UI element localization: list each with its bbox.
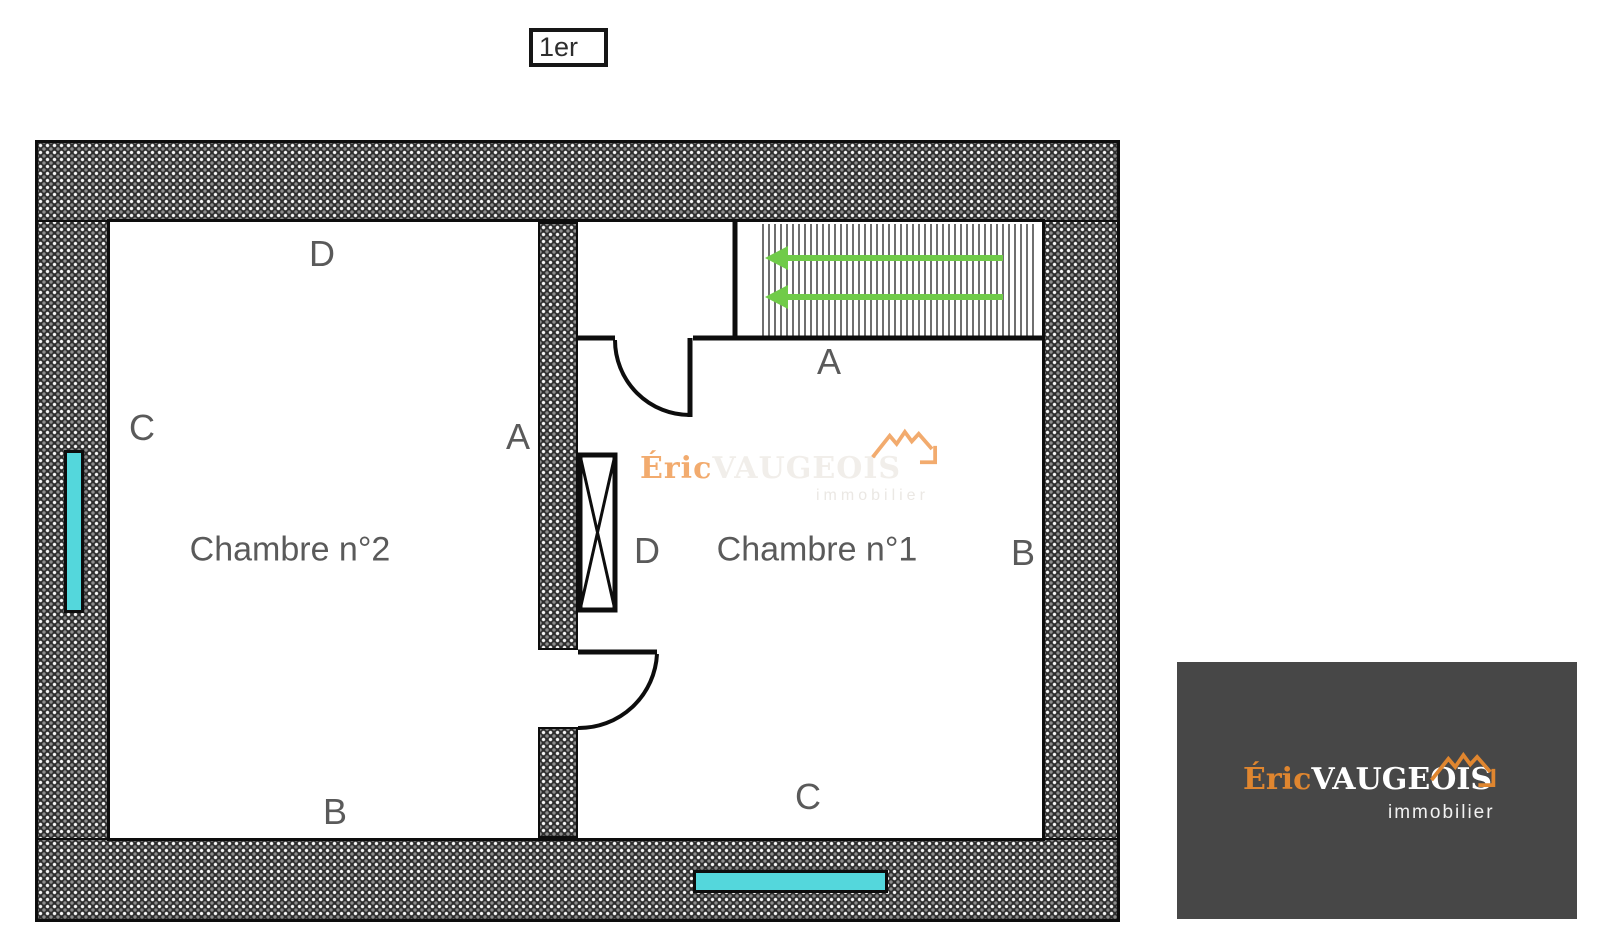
floor-plan: D C A B Chambre n°2 A D B C Chambre n°1 — [35, 140, 1120, 922]
room1-wall-label-bottom: C — [795, 776, 821, 818]
room2-name: Chambre n°2 — [190, 531, 391, 570]
room1-wall-label-left: D — [634, 530, 660, 572]
logo-roofline-icon — [1429, 748, 1504, 789]
floor-badge: 1er — [529, 28, 608, 67]
room2-wall-label-top: D — [309, 233, 335, 275]
stair-arrow-head — [765, 285, 788, 309]
door-swing-arc-top — [615, 340, 690, 415]
screenshot-root: { "floor_badge": { "label": "1er" }, "pl… — [0, 0, 1600, 936]
logo-tagline: immobilier — [1388, 802, 1495, 824]
room2-wall-label-left: C — [129, 407, 155, 449]
room1-name: Chambre n°1 — [717, 531, 918, 570]
door-swing-arc-bottom — [578, 654, 657, 728]
room1-wall-label-right: B — [1011, 532, 1035, 574]
stair-arrow-head — [765, 246, 788, 270]
room2-wall-label-right: A — [506, 416, 530, 458]
stair-direction-arrows — [765, 246, 1003, 309]
logo-brand-first: Éric — [1243, 762, 1311, 797]
room2-wall-label-bottom: B — [323, 791, 347, 833]
agency-logo-card: ÉricVAUGEOIS immobilier — [1177, 662, 1577, 919]
room1-wall-label-top: A — [817, 341, 841, 383]
floor-badge-label: 1er — [539, 32, 578, 62]
